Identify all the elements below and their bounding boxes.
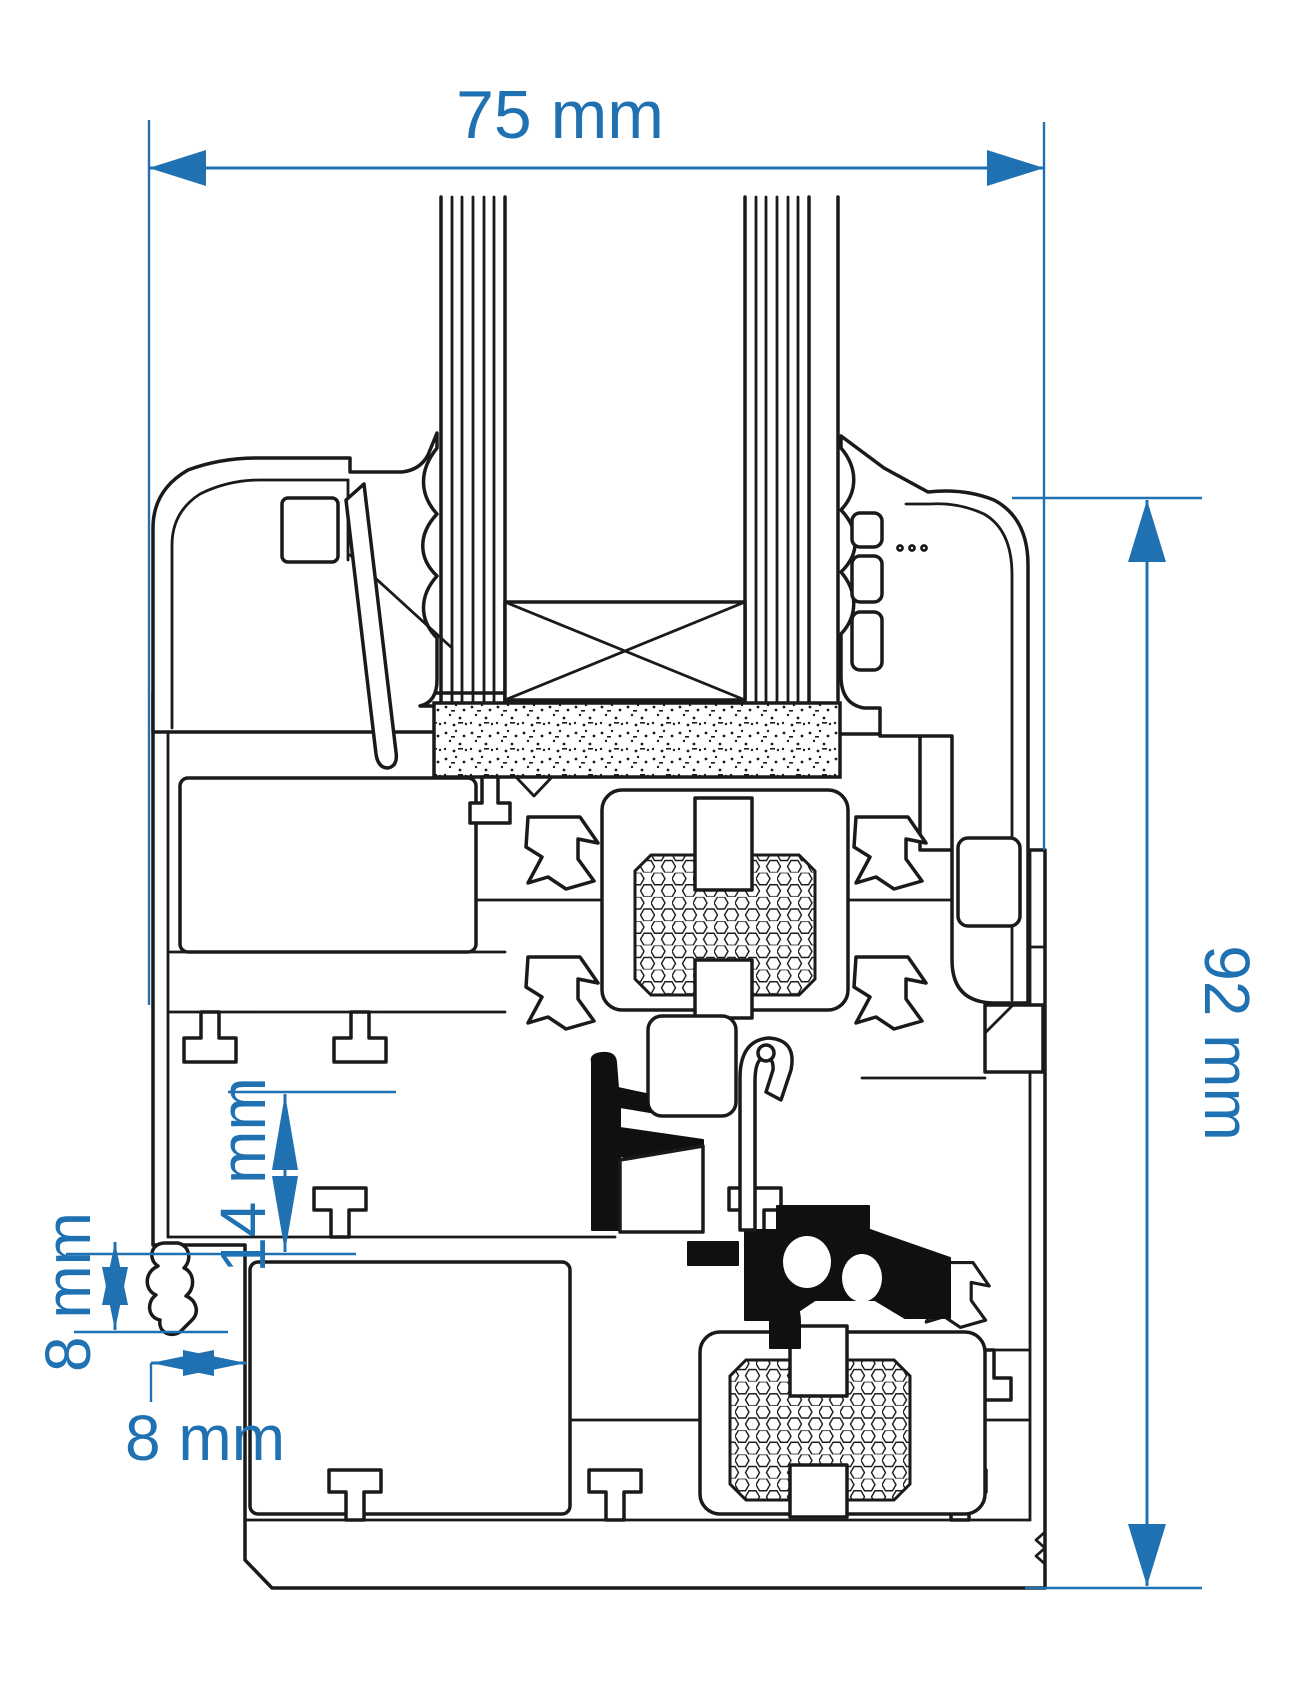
- glazing-unit: [434, 197, 840, 823]
- setting-block: [434, 703, 840, 777]
- arrow-left-icon: [149, 150, 206, 186]
- rubber-seal-block: [688, 1242, 738, 1265]
- dimension-overall-depth: 92 mm: [1012, 498, 1263, 1588]
- profile-cross-section-svg: 75 mm 92 mm 14 mm 8 mm 8 mm: [0, 0, 1311, 1684]
- center-chamber: [648, 1016, 736, 1116]
- sash-left: [153, 433, 452, 768]
- arrow-right-icon: [183, 1350, 246, 1376]
- frame-chamber-upper-left: [180, 778, 476, 952]
- dimension-label-depth: 92 mm: [1191, 945, 1263, 1141]
- sash-chamber: [852, 612, 882, 670]
- dimension-label-rebate: 14 mm: [207, 1077, 279, 1273]
- arrow-down-icon: [1128, 1524, 1166, 1586]
- thermal-plug-top: [695, 798, 752, 890]
- bead-chamber: [282, 498, 338, 562]
- sash-left-silhouette: [153, 433, 452, 732]
- arrow-right-icon: [987, 150, 1044, 186]
- frame-chamber-right: [985, 1005, 1043, 1072]
- dimension-label-width: 75 mm: [456, 77, 664, 153]
- arrow-up-icon: [1128, 500, 1166, 562]
- dimension-label-seal-offset: 8 mm: [125, 1402, 285, 1474]
- rubber-seal-bar: [777, 1206, 869, 1232]
- window-profile-drawing: 75 mm 92 mm 14 mm 8 mm 8 mm: [0, 0, 1311, 1684]
- hook-eyelet: [758, 1045, 774, 1061]
- frame-chamber-lower-left: [250, 1262, 570, 1514]
- thermal-plug-bottom: [695, 960, 752, 1018]
- seal-void: [783, 1236, 831, 1288]
- sash-chamber: [852, 556, 882, 602]
- foot-gasket: [147, 1243, 196, 1334]
- sash-chamber-lower: [958, 838, 1020, 926]
- glass-pane-right: [745, 197, 838, 703]
- seal-void: [842, 1254, 882, 1302]
- rubber-seal-tongue: [770, 1300, 800, 1348]
- glass-pane-left: [441, 197, 505, 703]
- sash-overlap-edge: [620, 1146, 703, 1232]
- dimension-label-seal-height: 8 mm: [32, 1212, 104, 1372]
- sash-chamber: [852, 513, 882, 547]
- thermal-plug-bottom: [790, 1465, 847, 1517]
